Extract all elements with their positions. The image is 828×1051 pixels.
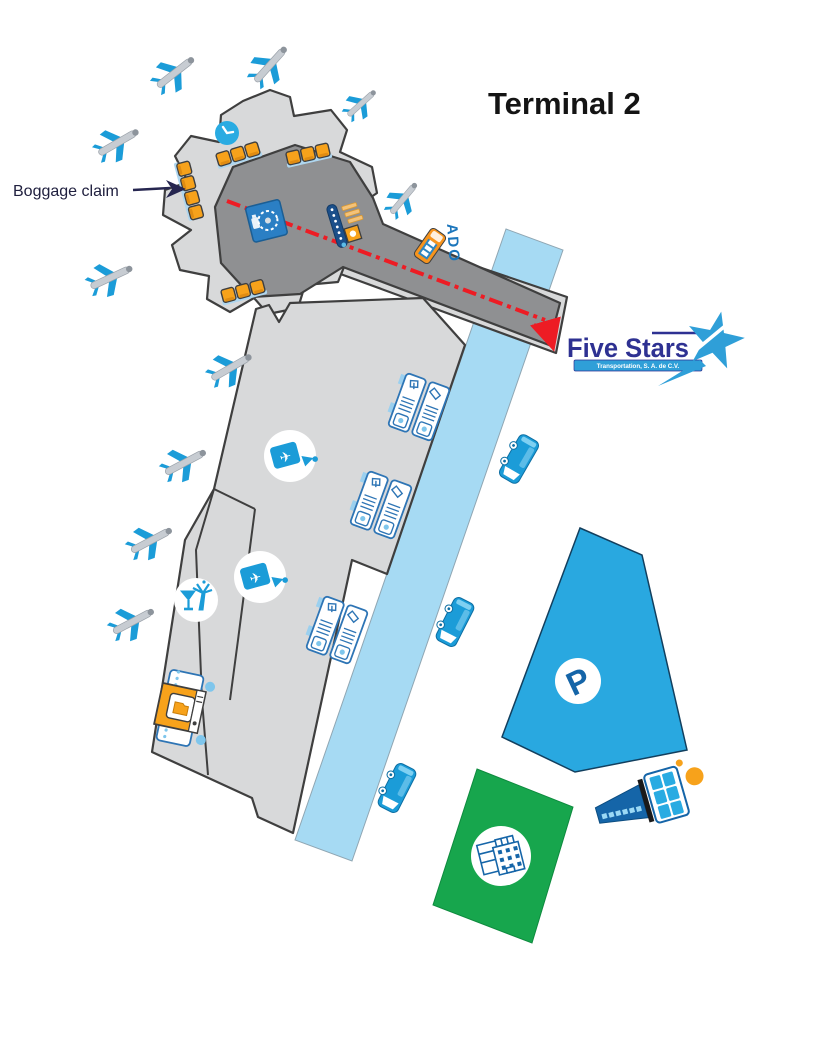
ado-label: ADO [443,223,463,263]
airplane-icon [121,515,180,568]
control-tower-icon [589,754,713,838]
airplane-icon [88,116,147,170]
airplane-icon [145,45,204,101]
bar-icon [174,578,218,622]
five-stars-name: Five Stars [567,333,689,363]
bus-icon [494,431,541,486]
terminal-map: ✈ [0,0,828,1051]
terminal-map-canvas: ✈ [0,0,828,1051]
airplane-icon [81,252,139,303]
parking-area: P [502,528,687,772]
airplane-icon [379,174,427,224]
airplane-icon [241,36,299,95]
hotel-zone [433,769,573,943]
airplane-icon [337,81,384,127]
airplane-icon [155,437,214,490]
map-title: Terminal 2 [488,86,641,121]
baggage-carousel-icon [245,199,288,242]
clock-icon [215,121,239,145]
baggage-claim-label: Boggage claim [13,183,119,200]
five-stars-tagline: Transportation, S. A. de C.V. [597,363,680,370]
airplane-icon [103,596,162,649]
five-stars-logo: Five Stars Transportation, S. A. de C.V. [567,306,749,386]
